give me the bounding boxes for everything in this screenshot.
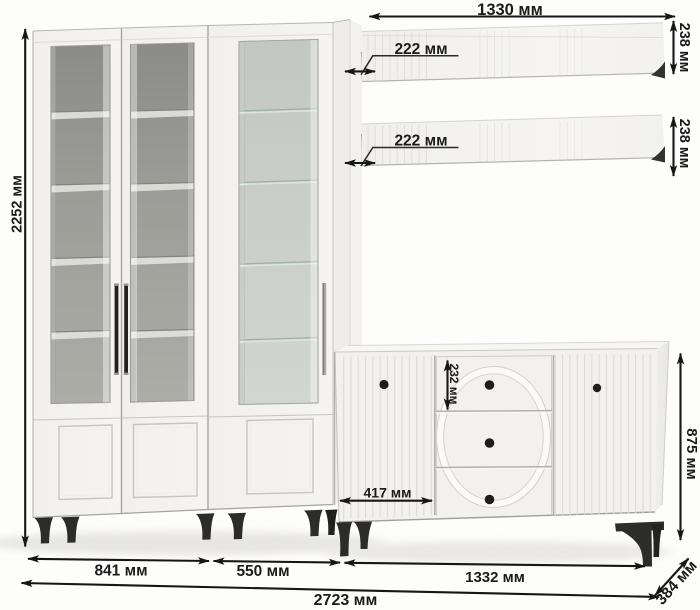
svg-text:417 мм: 417 мм <box>364 485 412 501</box>
svg-text:875 мм: 875 мм <box>683 428 700 479</box>
svg-text:1330 мм: 1330 мм <box>477 1 543 19</box>
svg-text:550 мм: 550 мм <box>236 563 289 580</box>
svg-text:238 мм: 238 мм <box>676 119 692 169</box>
svg-text:2252 мм: 2252 мм <box>10 175 26 233</box>
svg-text:841 мм: 841 мм <box>94 563 147 580</box>
svg-text:1332 мм: 1332 мм <box>465 569 525 586</box>
svg-text:232 мм: 232 мм <box>447 363 461 404</box>
svg-text:238 мм: 238 мм <box>676 23 692 73</box>
svg-text:2723 мм: 2723 мм <box>314 592 378 609</box>
